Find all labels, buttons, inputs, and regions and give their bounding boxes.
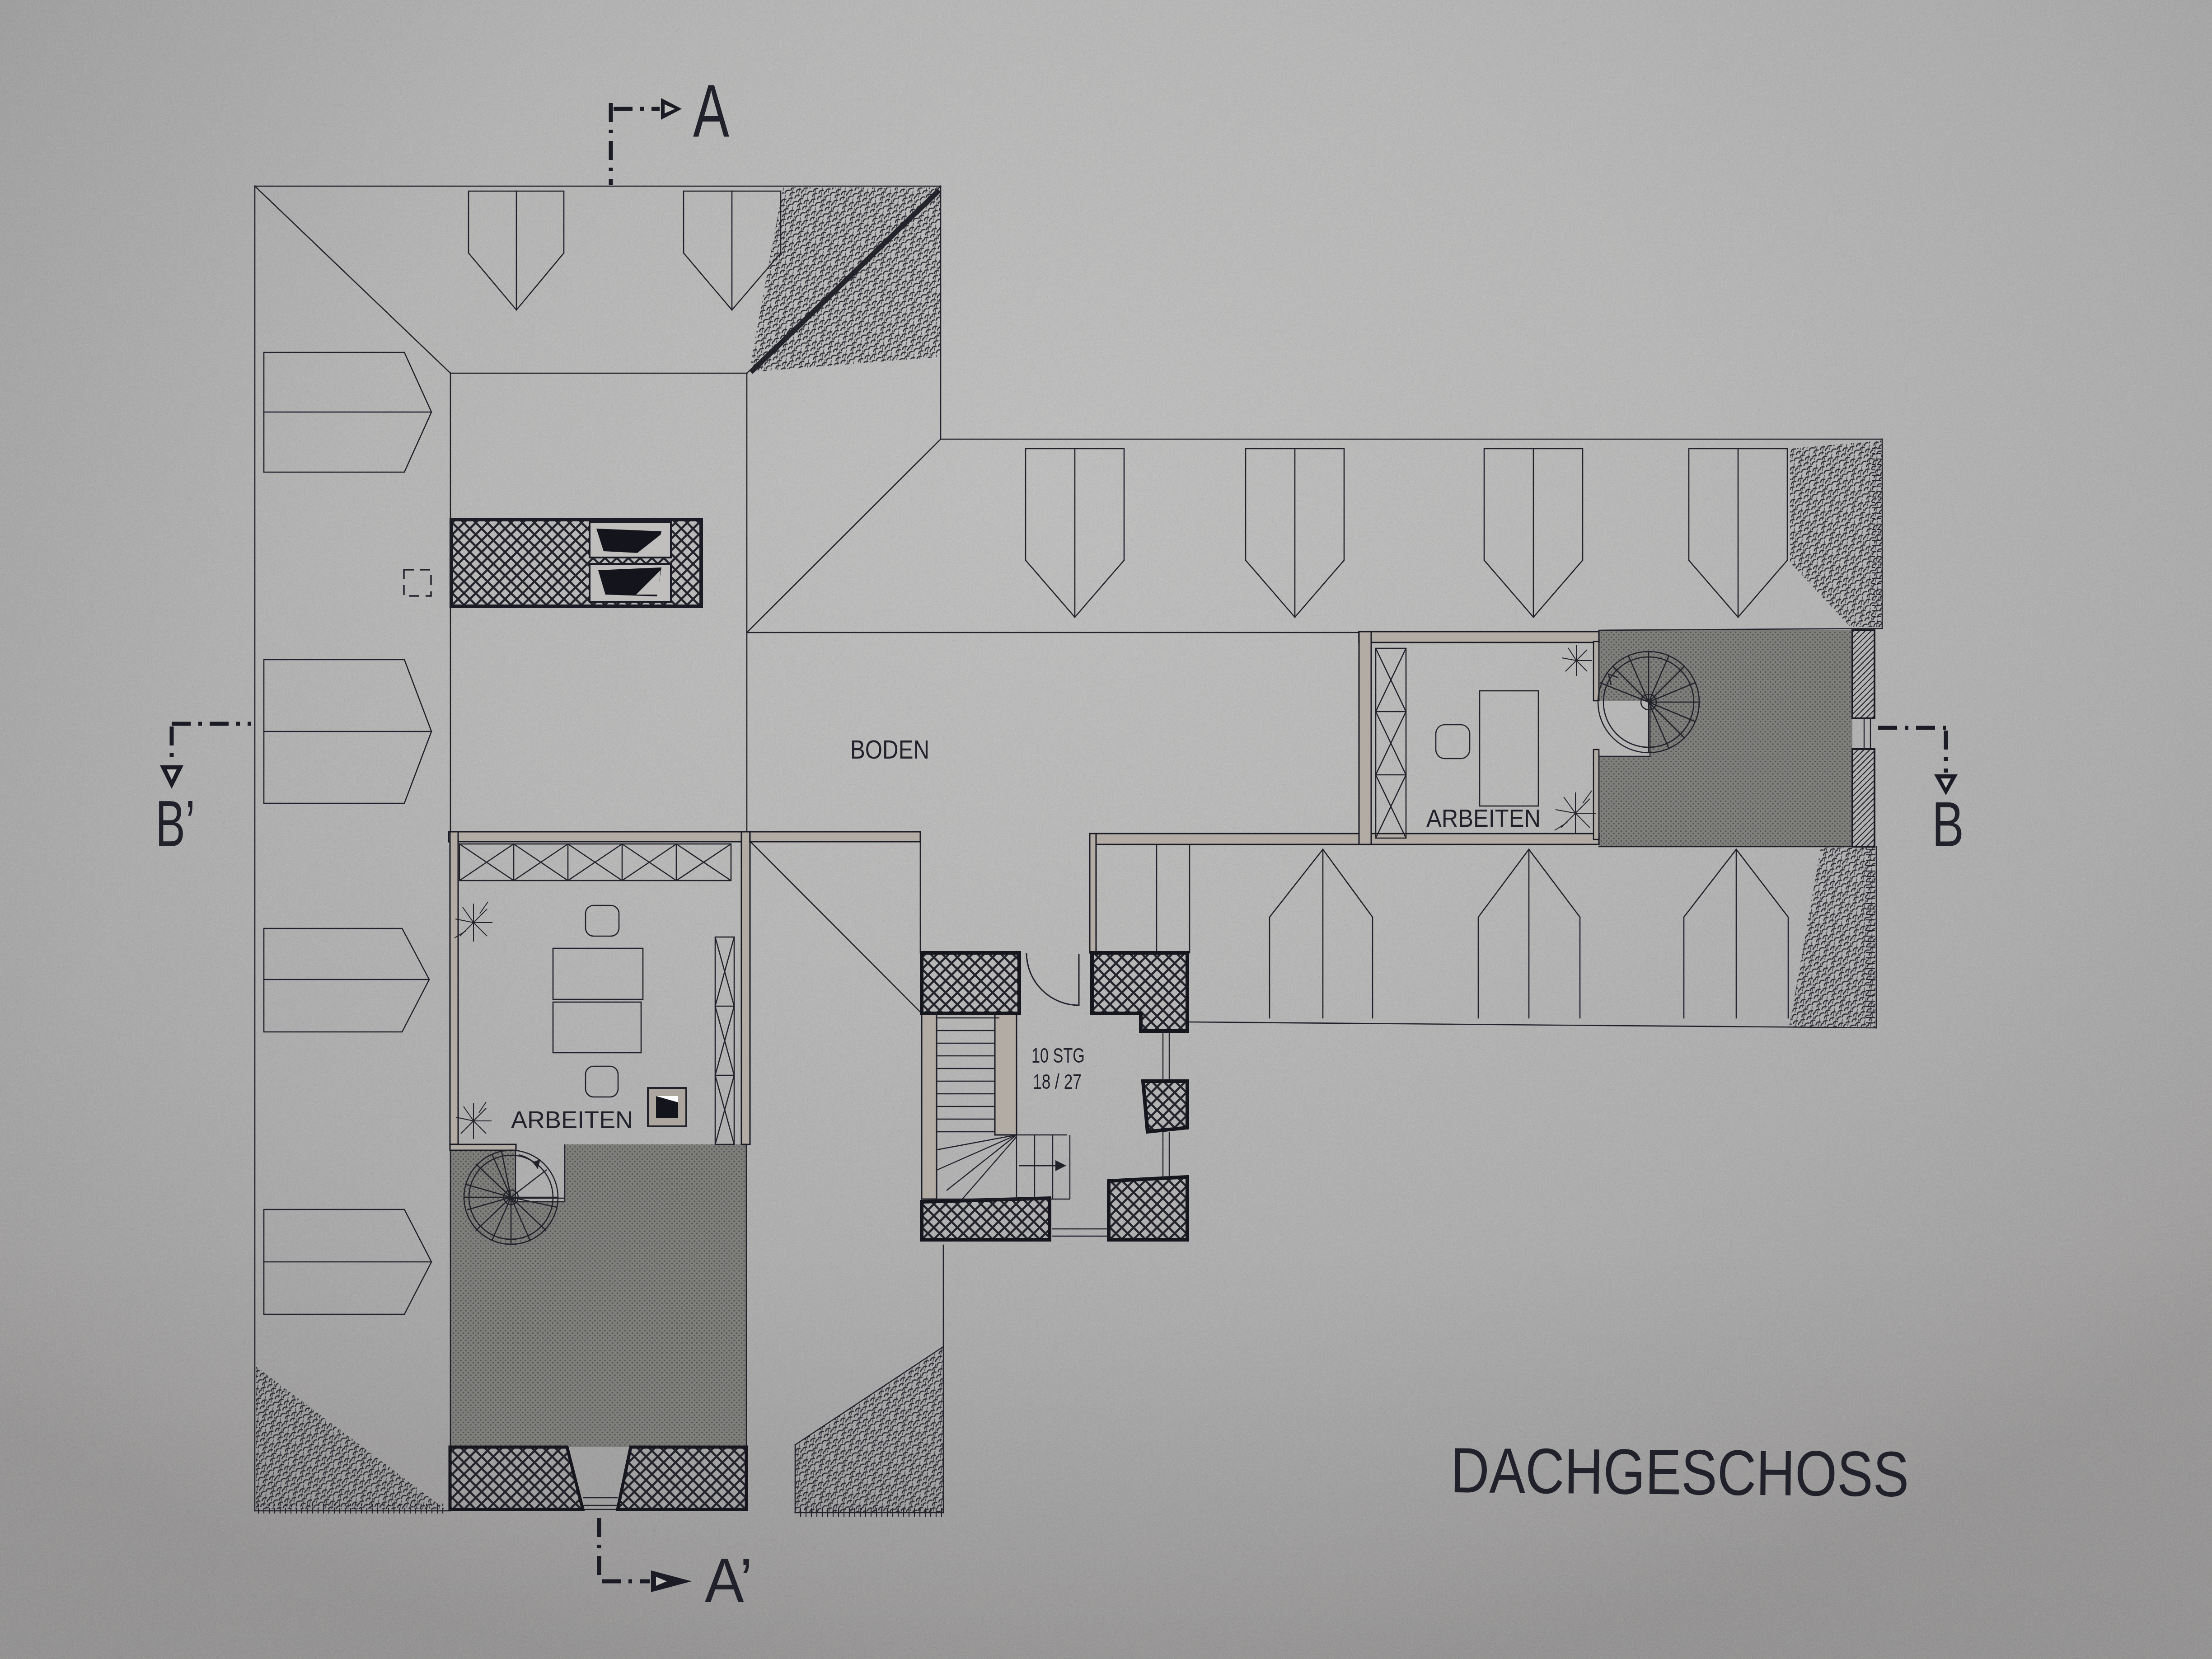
svg-text:ARBEITEN: ARBEITEN (511, 1106, 633, 1133)
svg-text:A: A (693, 69, 729, 152)
svg-text:BODEN: BODEN (850, 735, 929, 764)
svg-text:A’: A’ (705, 1545, 753, 1616)
svg-text:B: B (1932, 788, 1964, 860)
svg-text:B’: B’ (155, 787, 195, 860)
svg-text:ARBEITEN: ARBEITEN (1426, 804, 1541, 832)
svg-text:DACHGESCHOSS: DACHGESCHOSS (1450, 1434, 1909, 1510)
svg-text:18 / 27: 18 / 27 (1033, 1070, 1082, 1093)
svg-text:10 STG: 10 STG (1031, 1044, 1085, 1067)
